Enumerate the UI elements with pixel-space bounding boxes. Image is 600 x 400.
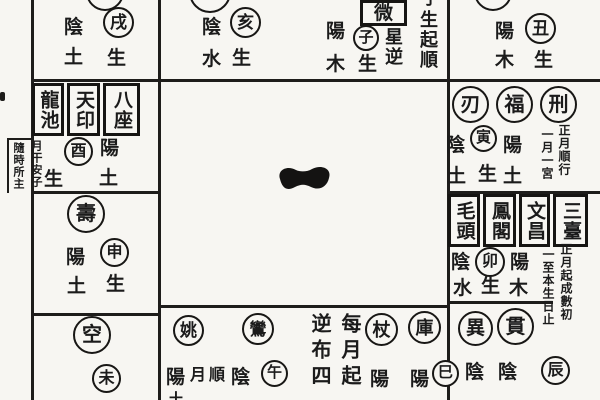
- star-bazuo-box: 八座: [103, 83, 140, 136]
- mao-note-right-column: 正月起成數初: [560, 243, 572, 321]
- clipped-circle-top: [189, 0, 231, 13]
- star-yao-circle: 姚: [173, 315, 204, 346]
- branch-chen-circle: 辰: [541, 356, 570, 385]
- star-xing-circle: 刑: [540, 86, 577, 123]
- si-note-right-column: 每月起: [339, 313, 359, 391]
- mao-pol-right: 陽: [510, 253, 529, 272]
- xu-element: 土: [64, 48, 83, 67]
- grid-line-h3-left: [31, 313, 160, 316]
- star-guan-circle: 貫: [497, 308, 534, 345]
- you-sheng: 生: [44, 170, 63, 189]
- branch-zi-circle: 子: [353, 25, 379, 51]
- xu-sheng: 生: [107, 49, 126, 68]
- star-santai-box: 三臺: [553, 194, 588, 247]
- wu-pol-right: 陰: [231, 368, 250, 387]
- mao-note-left-column: 一至本生日止: [542, 248, 554, 326]
- note-box-left-edge: [7, 138, 9, 193]
- grid-line-h1: [31, 79, 600, 82]
- star-wei-box: 微: [360, 0, 407, 26]
- yin-pol-left: 陰: [446, 136, 465, 155]
- branch-you-circle: 酉: [64, 137, 93, 166]
- yin-pol-right: 陽: [503, 136, 522, 155]
- shen-sheng: 生: [106, 275, 125, 294]
- star-luan-circle: 鸞: [242, 313, 274, 345]
- star-kong-circle: 空: [73, 316, 111, 354]
- grid-line-left: [31, 0, 34, 400]
- star-tianyin-box: 天印: [67, 83, 100, 136]
- si-note-left-column: 逆布四: [309, 313, 329, 391]
- hai-sheng: 生: [232, 49, 251, 68]
- you-element: 土: [99, 169, 118, 188]
- star-zhang-circle: 杖: [365, 313, 398, 346]
- branch-xu-circle: 戌: [103, 7, 134, 38]
- mao-el-right: 木: [509, 279, 528, 298]
- scan-speck: [0, 92, 5, 101]
- chen-pol-1: 陰: [465, 363, 484, 382]
- branch-mao-circle: 卯: [475, 247, 505, 277]
- zi-note-partial-char: 子: [422, 0, 439, 7]
- wu-note-char-1: 月: [190, 368, 206, 384]
- zi-note-column: 生起順: [419, 10, 437, 70]
- yin-el-right: 土: [503, 167, 522, 186]
- zi-element: 木: [326, 55, 345, 74]
- branch-chou-circle: 丑: [525, 13, 556, 44]
- mao-pol-left: 陰: [451, 253, 470, 272]
- shen-element: 土: [67, 277, 86, 296]
- wu-partial-bottom-char: 土: [168, 393, 184, 400]
- zi-polarity: 陽: [326, 22, 345, 41]
- you-note-left-column: 隨時所主: [12, 142, 23, 190]
- zi-star-column: 星逆: [384, 27, 402, 67]
- star-yi-circle: 異: [458, 311, 493, 346]
- grid-line-h2-left: [31, 191, 160, 194]
- grid-line-h3-right: [447, 301, 553, 304]
- yin-sheng: 生: [478, 165, 497, 184]
- branch-hai-circle: 亥: [230, 7, 261, 38]
- chen-pol-2: 陰: [498, 363, 517, 382]
- yin-el-left: 土: [447, 167, 466, 186]
- branch-yin-circle: 寅: [470, 125, 497, 152]
- mao-sheng: 生: [481, 277, 500, 296]
- grid-line-h3-mid: [158, 305, 449, 308]
- yin-note-right-column: 正月順行: [558, 124, 570, 176]
- you-polarity: 陽: [100, 139, 119, 158]
- star-fu-circle: 福: [496, 86, 533, 123]
- si-pol-2: 陽: [410, 370, 429, 389]
- grid-line-v2: [158, 0, 161, 400]
- star-ku-circle: 庫: [408, 311, 441, 344]
- branch-si-circle: 巳: [432, 360, 459, 387]
- xu-polarity: 陰: [64, 18, 83, 37]
- branch-wei-circle: 未: [92, 364, 121, 393]
- chou-polarity: 陽: [495, 22, 514, 41]
- star-ren-circle: 刃: [452, 86, 489, 123]
- zi-sheng: 生: [358, 55, 377, 74]
- branch-wu-circle: 午: [261, 360, 288, 387]
- star-maotou-box: 毛頭: [448, 194, 480, 247]
- chou-sheng: 生: [534, 51, 553, 70]
- shen-polarity: 陽: [66, 248, 85, 267]
- wu-note-char-2: 順: [209, 368, 225, 384]
- star-wenchang-box: 文昌: [519, 194, 550, 247]
- star-shou-circle: 壽: [67, 195, 105, 233]
- yin-note-left-column: 一月一宮: [541, 128, 553, 180]
- divination-chart: 戌 陰 土 生 亥 陰 水 生 陽 木 微 子 生 星逆 子 生起順 陽 丑 木…: [0, 0, 600, 400]
- wu-pol-left: 陽: [166, 368, 185, 387]
- star-fengge-box: 鳳閣: [483, 194, 516, 247]
- you-note-right-column: 月干安子: [30, 140, 41, 188]
- hai-polarity: 陰: [202, 18, 221, 37]
- mao-el-left: 水: [453, 279, 472, 298]
- chou-element: 木: [495, 51, 514, 70]
- si-pol-1: 陽: [370, 370, 389, 389]
- hai-element: 水: [202, 50, 221, 69]
- branch-shen-circle: 申: [100, 238, 129, 267]
- star-longchi-box: 龍池: [32, 83, 64, 136]
- center-ink-blot: [274, 162, 334, 195]
- clipped-circle-top: [474, 0, 512, 11]
